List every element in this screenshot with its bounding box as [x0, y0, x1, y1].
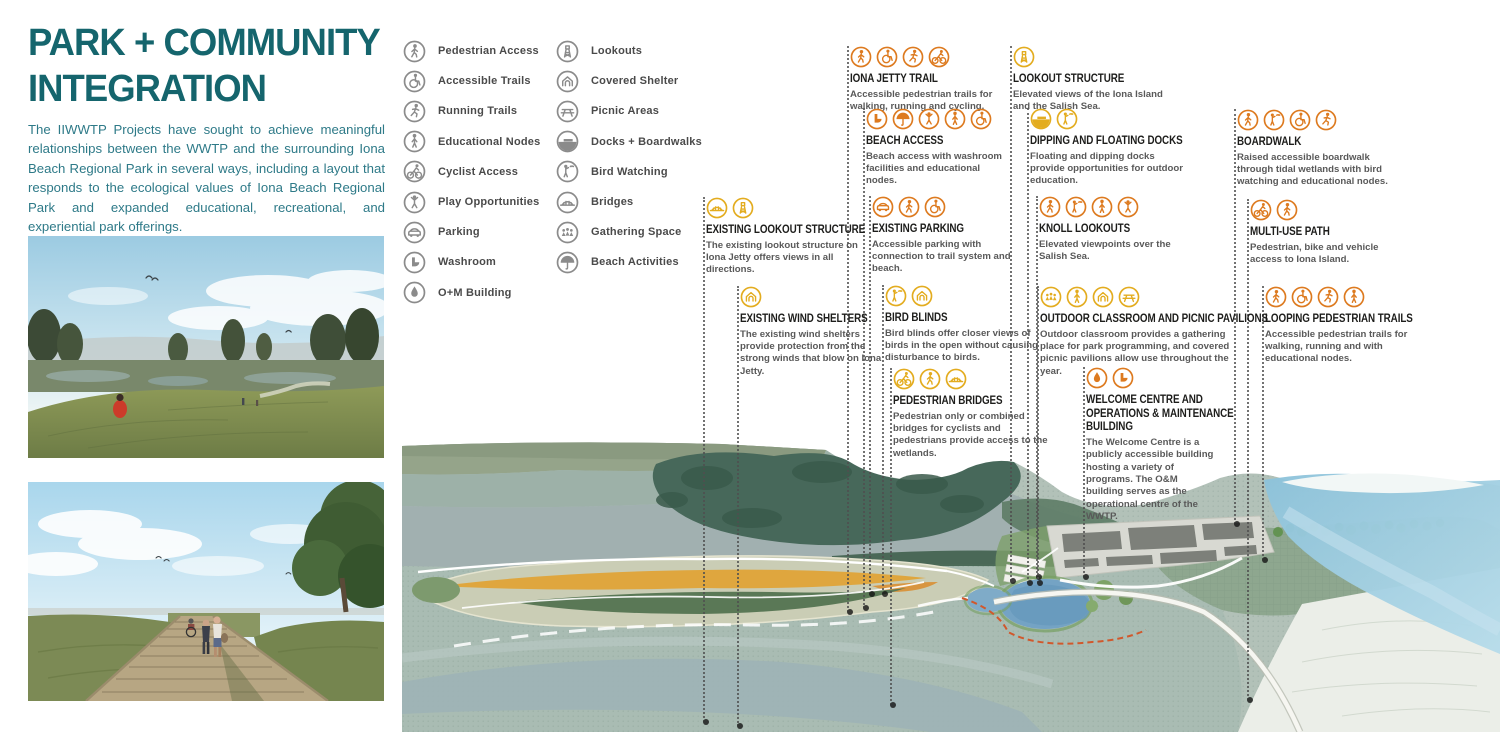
shelter-icon — [911, 285, 933, 307]
callout-description: Accessible parking with connection to tr… — [872, 239, 1020, 276]
callout-icon-row — [1250, 199, 1395, 221]
callout-dipping-and-floating-docks: DIPPING AND FLOATING DOCKSFloating and d… — [1030, 108, 1188, 188]
car-icon — [872, 196, 894, 218]
umbrella-icon — [892, 108, 914, 130]
callout-description: Elevated viewpoints over the Salish Sea. — [1039, 239, 1189, 264]
callout-title: BOARDWALK — [1237, 135, 1399, 149]
legend-item-label: Play Opportunities — [438, 196, 539, 208]
callout-title: DIPPING AND FLOATING DOCKS — [1030, 134, 1188, 148]
callout-looping-pedestrian-trails: LOOPING PEDESTRIAN TRAILSAccessible pede… — [1265, 286, 1420, 366]
shelter-icon — [1092, 286, 1114, 308]
legend-column-1: Pedestrian AccessAccessible TrailsRunnin… — [403, 36, 540, 308]
page-title-line2: INTEGRATION — [28, 66, 393, 112]
page-title: PARK + COMMUNITY INTEGRATION — [28, 20, 408, 112]
callout-lookout-structure: LOOKOUT STRUCTUREElevated views of the I… — [1013, 46, 1163, 113]
education-icon — [403, 130, 426, 153]
callout-icon-row — [1086, 367, 1216, 389]
leader-dot — [869, 591, 875, 597]
callout-icon-row — [850, 46, 1000, 68]
callout-icon-row — [885, 285, 1041, 307]
bridge-icon — [556, 191, 579, 214]
leader-dot — [1247, 697, 1253, 703]
education-icon — [944, 108, 966, 130]
legend-item-label: Accessible Trails — [438, 75, 531, 87]
leader-line — [1247, 199, 1249, 700]
wheelchair-icon — [970, 108, 992, 130]
callout-description: Beach access with washroom facilities an… — [866, 151, 1008, 188]
callout-description: The existing wind shelters provide prote… — [740, 329, 890, 379]
callout-title-line: BUILDING — [1086, 420, 1190, 434]
washroom-icon — [866, 108, 888, 130]
callout-title-line: OUTDOOR CLASSROOM AND PICNIC PAVILIONS — [1040, 312, 1192, 326]
legend-item: Play Opportunities — [403, 187, 540, 217]
legend-item-label: Covered Shelter — [591, 75, 678, 87]
callout-icon-row — [1265, 286, 1420, 308]
leader-dot — [703, 719, 709, 725]
leader-dot — [890, 702, 896, 708]
washroom-icon — [1112, 367, 1134, 389]
runner-icon — [902, 46, 924, 68]
photo-knoll-rendering — [28, 236, 384, 458]
callout-title-line: KNOLL LOOKOUTS — [1039, 222, 1159, 236]
shelter-icon — [740, 286, 762, 308]
birdwatcher-icon — [1263, 109, 1285, 131]
pedestrian-icon — [1237, 109, 1259, 131]
callout-bird-blinds: BIRD BLINDSBird blinds offer closer view… — [885, 285, 1041, 365]
callout-description: Pedestrian, bike and vehicle access to I… — [1250, 242, 1395, 267]
birdwatcher-icon — [885, 285, 907, 307]
lookout-icon — [732, 197, 754, 219]
legend-item-label: Bridges — [591, 196, 633, 208]
legend-item-label: Pedestrian Access — [438, 45, 539, 57]
leader-dot — [863, 605, 869, 611]
birdwatcher-icon — [1065, 196, 1087, 218]
callout-beach-access: BEACH ACCESSBeach access with washroom f… — [866, 108, 1008, 188]
play-icon — [403, 191, 426, 214]
callout-existing-wind-shelters: EXISTING WIND SHELTERSThe existing wind … — [740, 286, 890, 378]
callout-description: Bird blinds offer closer views of birds … — [885, 328, 1041, 365]
callout-title-line: DIPPING AND FLOATING DOCKS — [1030, 134, 1156, 148]
callout-icon-row — [1039, 196, 1189, 218]
umbrella-icon — [556, 251, 579, 274]
play-icon — [1117, 196, 1139, 218]
leader-dot — [1037, 580, 1043, 586]
callout-description: Accessible pedestrian trails for walking… — [1265, 329, 1420, 366]
legend-item: O+M Building — [403, 278, 540, 308]
callout-icon-row — [740, 286, 890, 308]
callout-icon-row — [1030, 108, 1188, 130]
pedestrian-icon — [1265, 286, 1287, 308]
legend-item-label: Cyclist Access — [438, 166, 518, 178]
leader-line — [703, 197, 705, 722]
gathering-icon — [1040, 286, 1062, 308]
callout-title-line: BEACH ACCESS — [866, 134, 980, 148]
callout-boardwalk: BOARDWALKRaised accessible boardwalk thr… — [1237, 109, 1399, 189]
birdwatcher-icon — [1056, 108, 1078, 130]
callout-title: BEACH ACCESS — [866, 134, 1008, 148]
legend-item: Accessible Trails — [403, 66, 540, 96]
dock-icon — [1030, 108, 1052, 130]
callout-existing-lookout-structure: EXISTING LOOKOUT STRUCTUREThe existing l… — [706, 197, 858, 277]
washroom-icon — [403, 251, 426, 274]
cyclist-icon — [1250, 199, 1272, 221]
callout-pedestrian-bridges: PEDESTRIAN BRIDGESPedestrian only or com… — [893, 368, 1051, 460]
wheelchair-icon — [876, 46, 898, 68]
legend-item-label: Lookouts — [591, 45, 642, 57]
lookout-icon — [1013, 46, 1035, 68]
picnic-icon — [1118, 286, 1140, 308]
legend-item-label: Gathering Space — [591, 226, 681, 238]
picnic-icon — [556, 100, 579, 123]
site-plan-rendering — [402, 440, 1500, 732]
callout-description: Floating and dipping docks provide oppor… — [1030, 151, 1188, 188]
callout-title: MULTI-USE PATH — [1250, 225, 1395, 239]
callout-iona-jetty-trail: IONA JETTY TRAILAccessible pedestrian tr… — [850, 46, 1000, 113]
callout-title-line: BIRD BLINDS — [885, 311, 1010, 325]
leader-line — [737, 286, 739, 726]
callout-title-line: EXISTING LOOKOUT STRUCTURE — [706, 223, 828, 237]
leader-dot — [847, 609, 853, 615]
leader-line — [869, 196, 871, 594]
shelter-icon — [556, 70, 579, 93]
callout-title: WELCOME CENTRE ANDOPERATIONS & MAINTENAN… — [1086, 393, 1216, 434]
callout-welcome-centre-and-om-building: WELCOME CENTRE ANDOPERATIONS & MAINTENAN… — [1086, 367, 1216, 524]
callout-title-line: BOARDWALK — [1237, 135, 1367, 149]
pedestrian-icon — [850, 46, 872, 68]
legend-item: Lookouts — [556, 36, 702, 66]
legend-item: Docks + Boardwalks — [556, 127, 702, 157]
leader-line — [1083, 367, 1085, 577]
legend-item-label: Running Trails — [438, 105, 517, 117]
legend-item: Cyclist Access — [403, 157, 540, 187]
legend-item-label: Washroom — [438, 256, 496, 268]
legend-item-label: Beach Activities — [591, 256, 679, 268]
callout-title: PEDESTRIAN BRIDGES — [893, 394, 1051, 408]
legend-item-label: O+M Building — [438, 287, 512, 299]
legend-item: Covered Shelter — [556, 66, 702, 96]
callout-icon-row — [872, 196, 1020, 218]
car-icon — [403, 221, 426, 244]
runner-icon — [403, 100, 426, 123]
cyclist-icon — [893, 368, 915, 390]
wheelchair-icon — [924, 196, 946, 218]
bridge-icon — [706, 197, 728, 219]
callout-title-line: IONA JETTY TRAIL — [850, 72, 970, 86]
callout-icon-row — [1040, 286, 1230, 308]
legend-item: Bridges — [556, 187, 702, 217]
leader-dot — [1083, 574, 1089, 580]
callout-existing-parking: EXISTING PARKINGAccessible parking with … — [872, 196, 1020, 276]
wheelchair-icon — [403, 70, 426, 93]
cyclist-icon — [928, 46, 950, 68]
dock-icon — [556, 130, 579, 153]
legend-item: Washroom — [403, 247, 540, 277]
legend-item: Pedestrian Access — [403, 36, 540, 66]
callout-icon-row — [893, 368, 1051, 390]
callout-title-line: LOOKOUT STRUCTURE — [1013, 72, 1133, 86]
leader-dot — [1234, 521, 1240, 527]
runner-icon — [1317, 286, 1339, 308]
leader-line — [1262, 286, 1264, 560]
presentation-board: PARK + COMMUNITY INTEGRATION The IIWWTP … — [0, 0, 1500, 732]
leader-dot — [737, 723, 743, 729]
education-icon — [1091, 196, 1113, 218]
pedestrian-icon — [1039, 196, 1061, 218]
legend-item: Picnic Areas — [556, 96, 702, 126]
callout-title: EXISTING PARKING — [872, 222, 1020, 236]
drop-icon — [403, 281, 426, 304]
legend-item: Beach Activities — [556, 247, 702, 277]
drop-icon — [1086, 367, 1108, 389]
callout-icon-row — [706, 197, 858, 219]
intro-paragraph: The IIWWTP Projects have sought to achie… — [28, 120, 385, 236]
callout-description: Raised accessible boardwalk through tida… — [1237, 152, 1399, 189]
birdwatcher-icon — [556, 160, 579, 183]
callout-title-line: EXISTING WIND SHELTERS — [740, 312, 860, 326]
callout-title: KNOLL LOOKOUTS — [1039, 222, 1189, 236]
callout-outdoor-classroom-and-picnic-pavilions: OUTDOOR CLASSROOM AND PICNIC PAVILIONSOu… — [1040, 286, 1230, 378]
leader-dot — [1027, 580, 1033, 586]
callout-description: The Welcome Centre is a publicly accessi… — [1086, 437, 1216, 524]
wheelchair-icon — [1291, 286, 1313, 308]
gathering-icon — [556, 221, 579, 244]
wheelchair-icon — [1289, 109, 1311, 131]
callout-title: EXISTING WIND SHELTERS — [740, 312, 890, 326]
page-title-line1: PARK + COMMUNITY — [28, 20, 393, 66]
callout-title: LOOKOUT STRUCTURE — [1013, 72, 1163, 86]
callout-description: Pedestrian only or combined bridges for … — [893, 411, 1051, 461]
callout-multi-use-path: MULTI-USE PATHPedestrian, bike and vehic… — [1250, 199, 1395, 266]
lookout-icon — [556, 40, 579, 63]
runner-icon — [1315, 109, 1337, 131]
photo-boardwalk-rendering — [28, 482, 384, 701]
education-icon — [1066, 286, 1088, 308]
legend-item: Parking — [403, 217, 540, 247]
callout-title-line: LOOPING PEDESTRIAN TRAILS — [1265, 312, 1389, 326]
legend-item-label: Educational Nodes — [438, 136, 540, 148]
bridge-icon — [945, 368, 967, 390]
callout-knoll-lookouts: KNOLL LOOKOUTSElevated viewpoints over t… — [1039, 196, 1189, 263]
callout-icon-row — [1013, 46, 1163, 68]
legend-item-label: Picnic Areas — [591, 105, 659, 117]
cyclist-icon — [403, 160, 426, 183]
legend-item: Gathering Space — [556, 217, 702, 247]
leader-dot — [1262, 557, 1268, 563]
callout-title-line: OPERATIONS & MAINTENANCE — [1086, 407, 1190, 421]
callout-title-line: WELCOME CENTRE AND — [1086, 393, 1190, 407]
legend-item-label: Docks + Boardwalks — [591, 136, 702, 148]
callout-title: IONA JETTY TRAIL — [850, 72, 1000, 86]
callout-title: OUTDOOR CLASSROOM AND PICNIC PAVILIONS — [1040, 312, 1230, 326]
legend-item: Running Trails — [403, 96, 540, 126]
education-icon — [1343, 286, 1365, 308]
legend-item: Educational Nodes — [403, 127, 540, 157]
pedestrian-icon — [1276, 199, 1298, 221]
leader-dot — [882, 591, 888, 597]
legend-item-label: Bird Watching — [591, 166, 668, 178]
callout-title-line: EXISTING PARKING — [872, 222, 990, 236]
leader-dot — [1010, 578, 1016, 584]
callout-title: BIRD BLINDS — [885, 311, 1041, 325]
leader-line — [890, 368, 892, 705]
callout-title-line: MULTI-USE PATH — [1250, 225, 1366, 239]
callout-description: The existing lookout structure on Iona J… — [706, 240, 858, 277]
callout-icon-row — [866, 108, 1008, 130]
callout-icon-row — [1237, 109, 1399, 131]
legend-item: Bird Watching — [556, 157, 702, 187]
pedestrian-icon — [898, 196, 920, 218]
pedestrian-icon — [919, 368, 941, 390]
callout-title: EXISTING LOOKOUT STRUCTURE — [706, 223, 858, 237]
pedestrian-icon — [403, 40, 426, 63]
legend-item-label: Parking — [438, 226, 480, 238]
legend-column-2: LookoutsCovered ShelterPicnic AreasDocks… — [556, 36, 702, 278]
callout-title: LOOPING PEDESTRIAN TRAILS — [1265, 312, 1420, 326]
callout-title-line: PEDESTRIAN BRIDGES — [893, 394, 1019, 408]
play-icon — [918, 108, 940, 130]
